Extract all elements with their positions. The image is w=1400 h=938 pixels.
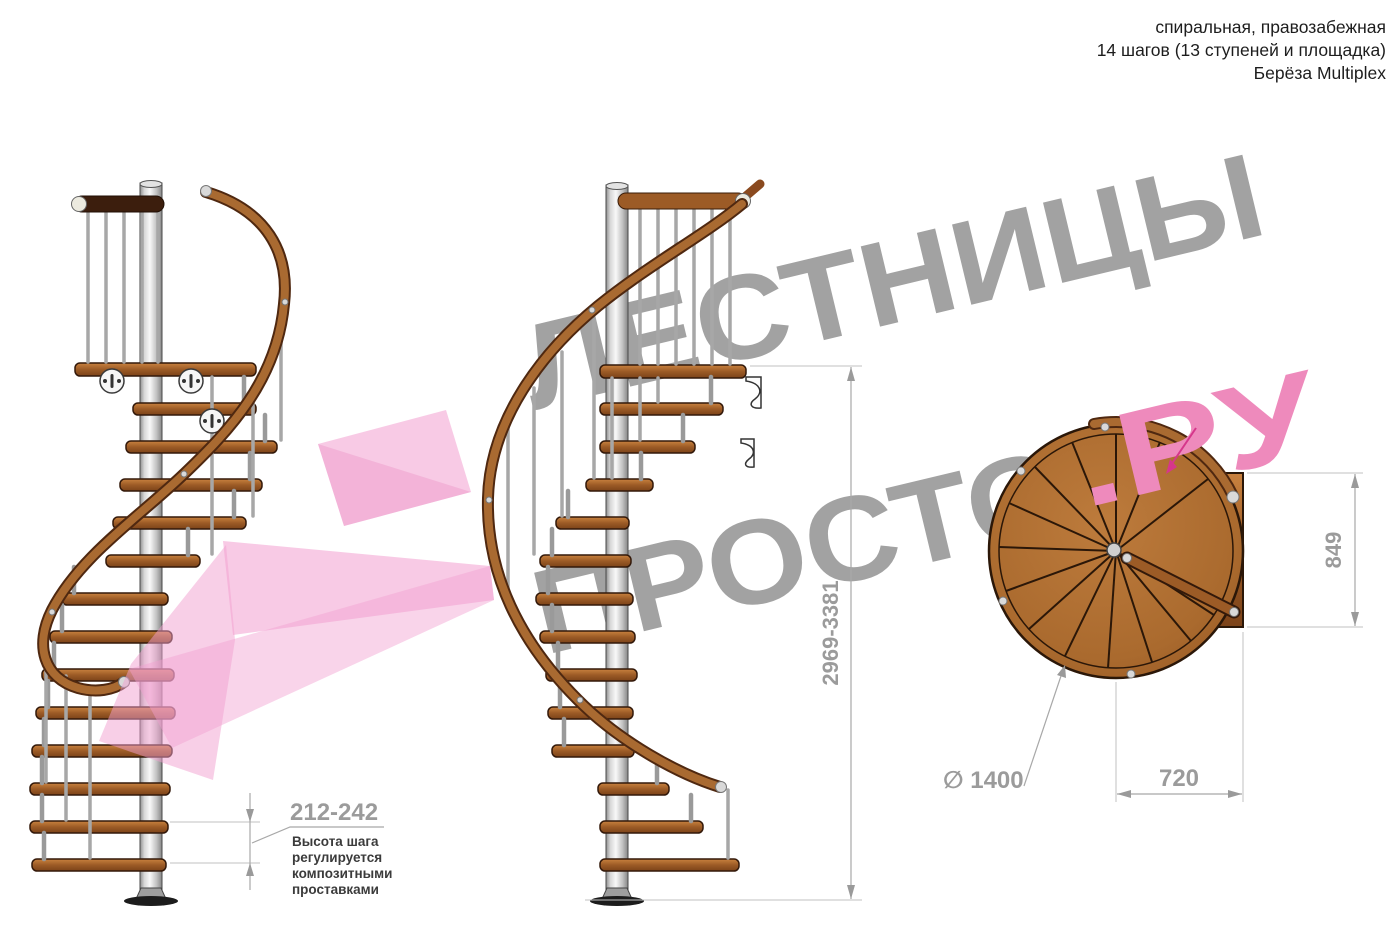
dim-step-height: 212-242 Высота шага регулируется компози… bbox=[170, 793, 392, 897]
header-line1: спиральная, правозабежная bbox=[1155, 17, 1386, 37]
rail-stub bbox=[746, 184, 760, 196]
staircase-drawing: ЛЕСТНИЦЫ ПРОСТО bbox=[0, 0, 1400, 938]
watermark-line2-pink: .РУ bbox=[1060, 345, 1334, 534]
step-height-label: 212-242 bbox=[290, 799, 378, 826]
step-note-line1: Высота шага bbox=[292, 834, 379, 849]
dim-plan-diameter: ∅ 1400 bbox=[943, 665, 1066, 794]
top-rail bbox=[618, 193, 746, 209]
left-staircase-side-view bbox=[30, 181, 288, 907]
bracket bbox=[746, 377, 761, 408]
mounting-plate bbox=[100, 369, 124, 393]
bracket bbox=[741, 439, 754, 467]
rail-end-cap bbox=[72, 197, 87, 212]
plan-diameter-label: ∅ 1400 bbox=[943, 767, 1024, 794]
total-height-label: 2969-3381 bbox=[818, 580, 843, 685]
support-brackets bbox=[741, 377, 761, 467]
step-note-line4: проставками bbox=[292, 882, 379, 897]
column-cap bbox=[606, 183, 628, 190]
mounting-plate bbox=[179, 369, 203, 393]
plan-width-label: 720 bbox=[1159, 765, 1199, 792]
column-cap bbox=[140, 181, 162, 188]
plan-depth-label: 849 bbox=[1321, 532, 1346, 569]
step-note-line2: регулируется bbox=[292, 850, 382, 865]
dim-plan-849: 849 bbox=[1247, 473, 1363, 627]
base-flange bbox=[590, 896, 644, 906]
step-note-line3: композитными bbox=[292, 866, 392, 881]
top-rail bbox=[74, 196, 164, 212]
header-text: спиральная, правозабежная 14 шагов (13 с… bbox=[1097, 17, 1387, 83]
center-column-plan bbox=[1107, 543, 1121, 557]
drawing-page: ЛЕСТНИЦЫ ПРОСТО bbox=[0, 0, 1400, 938]
header-line3: Берёза Multiplex bbox=[1254, 63, 1387, 83]
watermark-ru-overlay: .РУ bbox=[1060, 345, 1334, 534]
base-flange bbox=[124, 896, 178, 906]
header-line2: 14 шагов (13 ступеней и площадка) bbox=[1097, 40, 1386, 60]
